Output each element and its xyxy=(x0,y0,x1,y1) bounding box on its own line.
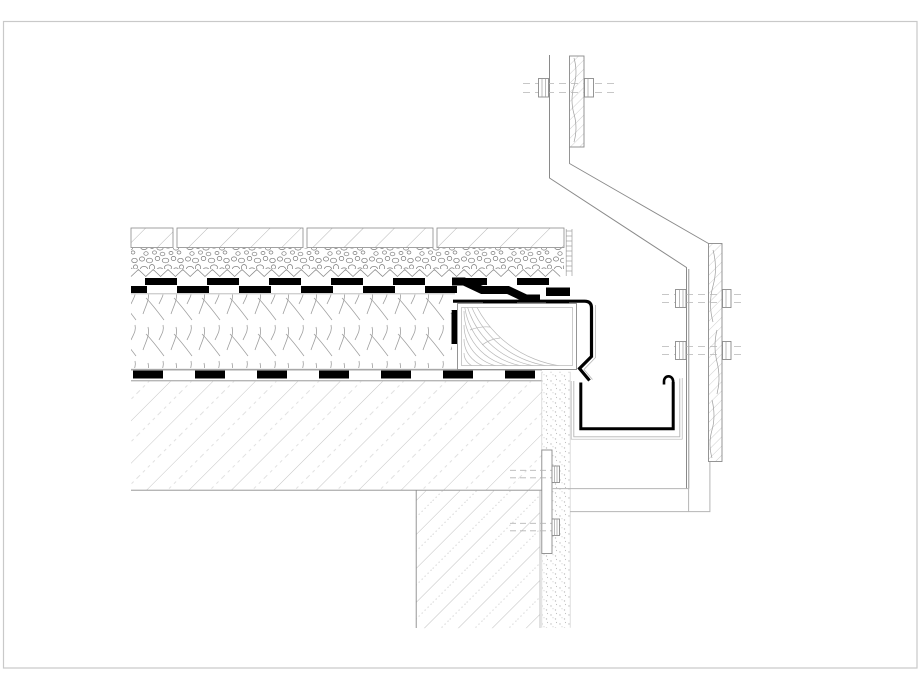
fixing-plate xyxy=(542,450,552,554)
membrane-step-2 xyxy=(498,290,540,299)
parapet-wall xyxy=(416,490,540,628)
bolt-head xyxy=(552,519,560,536)
cad-page xyxy=(0,0,920,690)
protection-fleece xyxy=(131,270,560,277)
concrete-roof-slab xyxy=(131,382,542,491)
paving-slab xyxy=(177,228,303,248)
membrane-upstand-bar xyxy=(452,310,458,344)
membrane-step-1 xyxy=(452,282,498,291)
bolt-head xyxy=(676,290,687,308)
paving-slab xyxy=(437,228,564,248)
hex-bolt-right-2 xyxy=(662,342,744,360)
membrane-corner-bar xyxy=(546,288,570,297)
gravel-ballast xyxy=(131,248,564,269)
thermal-insulation xyxy=(131,295,452,369)
bolt-head xyxy=(552,466,560,483)
bolt-nut xyxy=(723,290,732,308)
timber-blocking xyxy=(458,304,577,370)
paving-slab xyxy=(131,228,173,248)
bolt-nut xyxy=(723,342,732,360)
bolt-head xyxy=(676,342,687,360)
paving-slab xyxy=(307,228,433,248)
flashing-backline xyxy=(584,305,596,380)
box-gutter xyxy=(581,382,673,429)
bolt-head xyxy=(539,79,549,98)
bolt-nut xyxy=(585,79,594,98)
bracket-inner-line xyxy=(570,147,709,244)
detail-drawing xyxy=(0,0,920,690)
hex-bolt-right-1 xyxy=(662,290,744,308)
edge-trim-ladder xyxy=(566,229,572,276)
gutter-assembly xyxy=(571,376,682,439)
paving-slabs xyxy=(131,228,564,248)
